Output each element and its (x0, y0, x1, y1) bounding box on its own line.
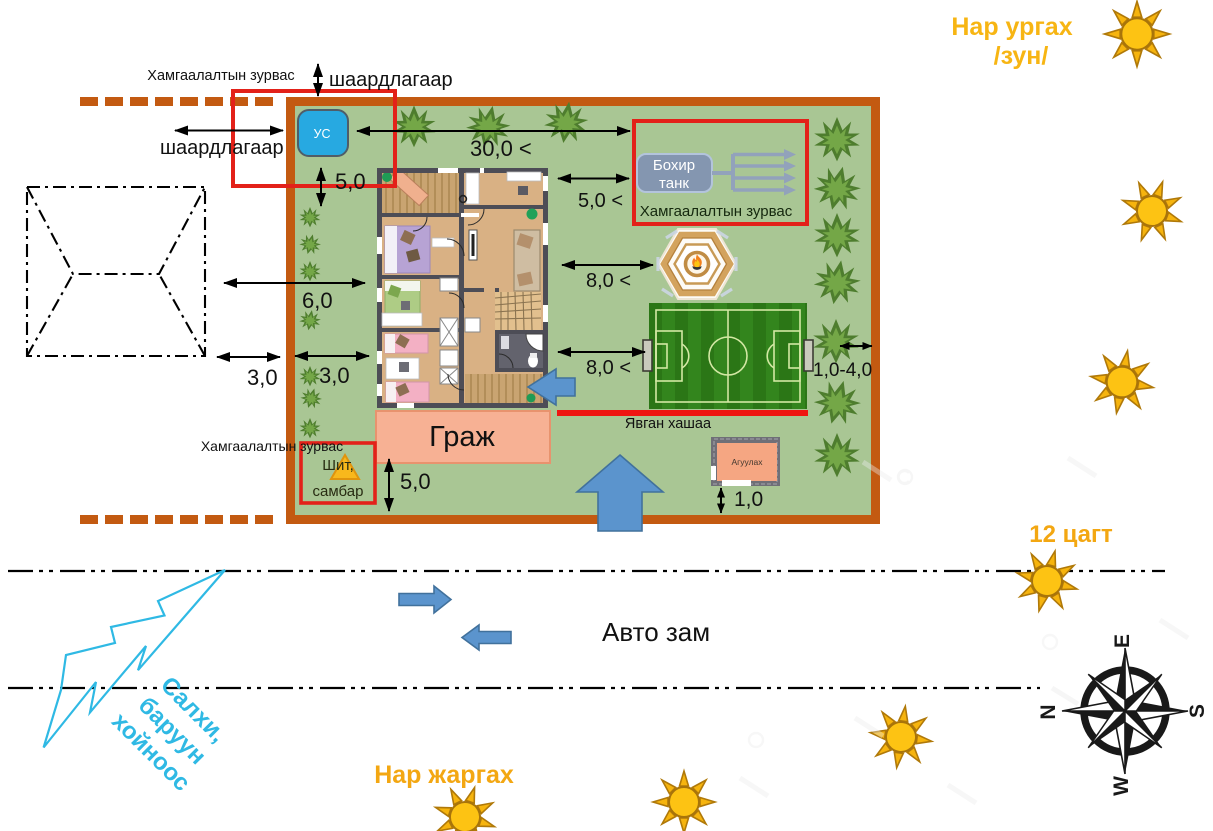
svg-text:Шит,: Шит, (322, 457, 354, 474)
svg-text:8,0 <: 8,0 < (586, 270, 631, 292)
svg-text:W: W (1110, 776, 1133, 796)
svg-text:Нар жаргах: Нар жаргах (374, 761, 514, 789)
svg-text:5,0: 5,0 (335, 169, 366, 194)
svg-text:1,0: 1,0 (734, 488, 763, 511)
svg-text:Хамгаалалтын зурвас: Хамгаалалтын зурвас (201, 438, 343, 454)
svg-text:Агуулах: Агуулах (731, 457, 763, 467)
svg-text:N: N (1037, 704, 1060, 719)
svg-text:S: S (1186, 704, 1209, 718)
svg-text:12 цагт: 12 цагт (1029, 521, 1113, 548)
svg-text:E: E (1111, 634, 1134, 648)
svg-text:Нар ургах: Нар ургах (951, 13, 1072, 41)
svg-text:Хамгаалалтын зурвас: Хамгаалалтын зурвас (640, 203, 793, 220)
svg-text:Бохир: Бохир (653, 157, 695, 174)
svg-text:шаардлагаар: шаардлагаар (329, 69, 453, 91)
svg-text:3,0: 3,0 (247, 365, 278, 390)
svg-text:УС: УС (314, 127, 331, 141)
svg-text:самбар: самбар (313, 483, 364, 500)
svg-text:5,0: 5,0 (400, 469, 431, 494)
svg-text:3,0: 3,0 (319, 363, 350, 388)
svg-text:/зун/: /зун/ (994, 42, 1049, 70)
svg-text:6,0: 6,0 (302, 288, 333, 313)
svg-text:Хамгаалалтын зурвас: Хамгаалалтын зурвас (147, 68, 294, 84)
svg-text:5,0 <: 5,0 < (578, 190, 623, 212)
svg-text:Явган хашаа: Явган хашаа (625, 416, 712, 432)
svg-text:шаардлагаар: шаардлагаар (160, 137, 284, 159)
svg-text:танк: танк (659, 175, 689, 192)
svg-text:1,0-4,0: 1,0-4,0 (813, 360, 872, 381)
svg-text:Авто зам: Авто зам (602, 617, 710, 647)
svg-text:8,0 <: 8,0 < (586, 357, 631, 379)
svg-text:30,0 <: 30,0 < (470, 136, 532, 161)
svg-text:Граж: Граж (429, 421, 495, 453)
